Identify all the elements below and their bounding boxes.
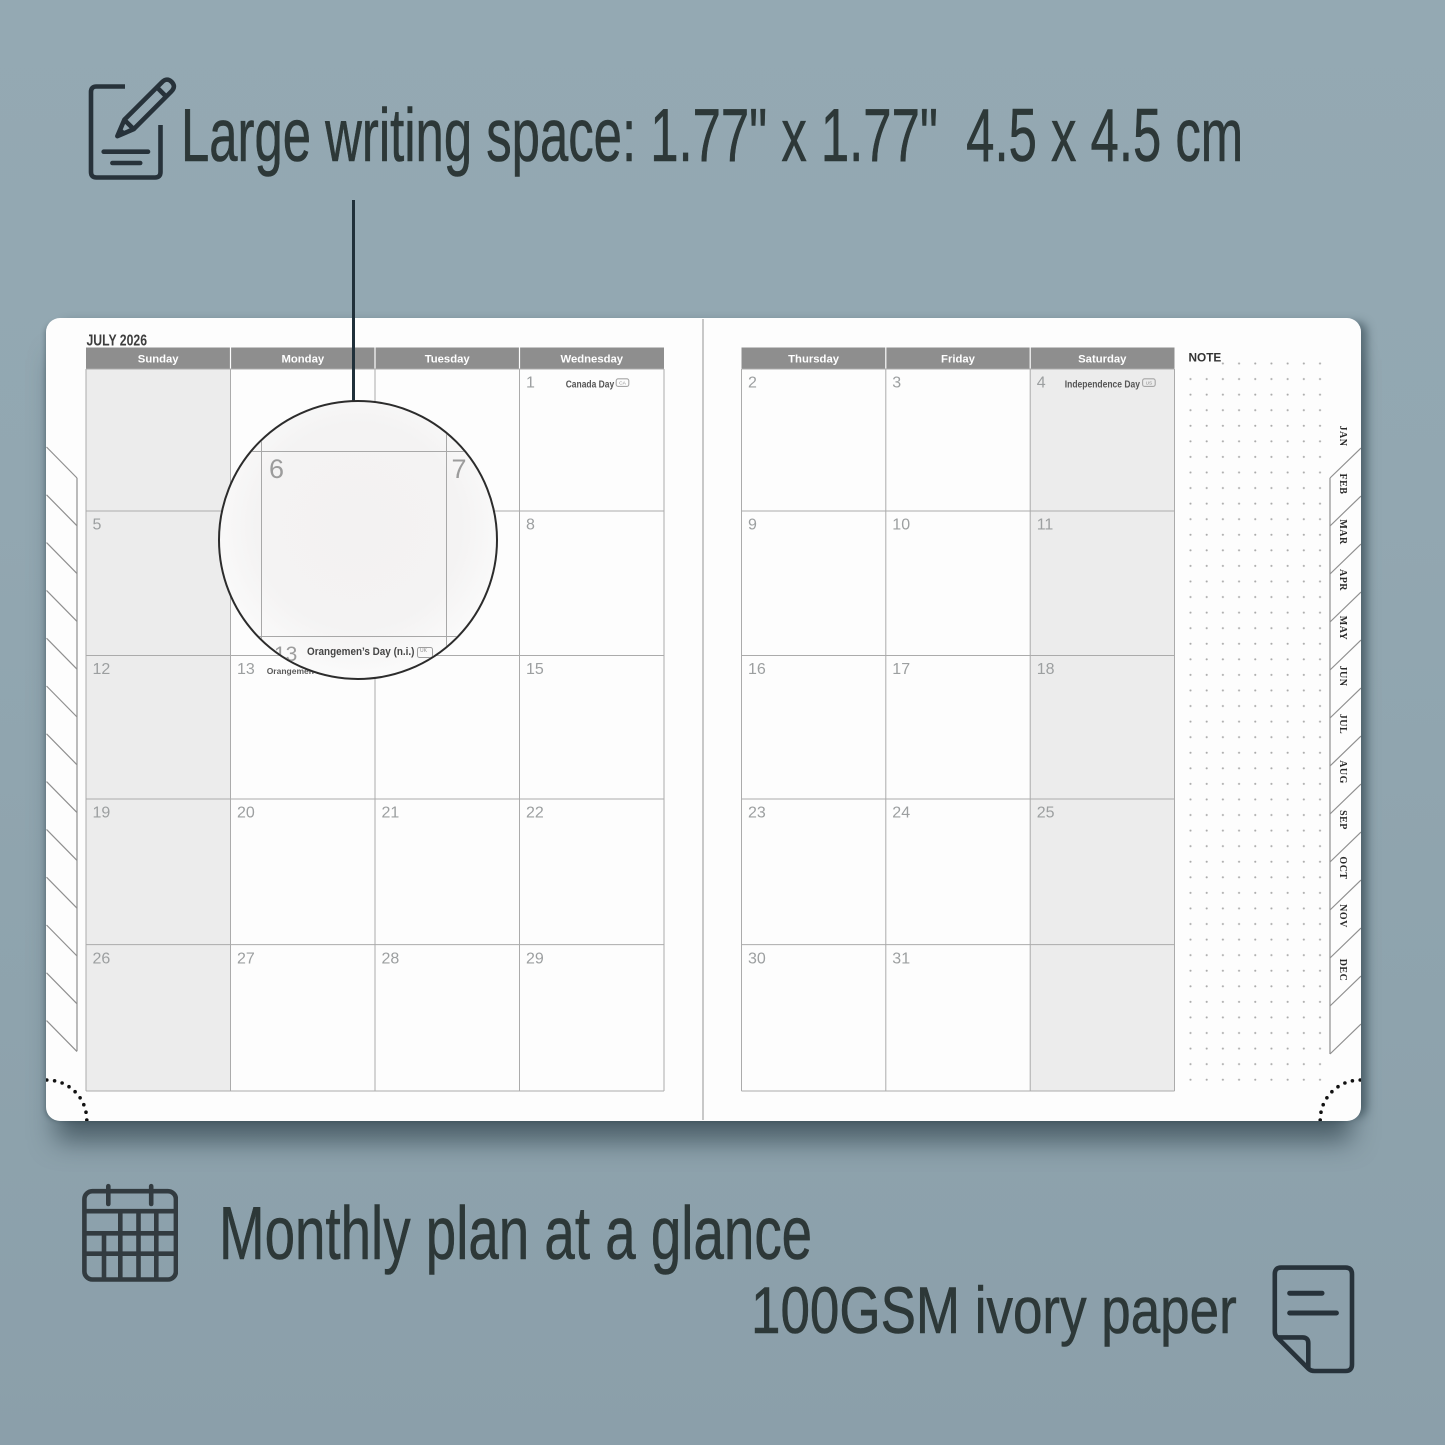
- svg-text:JUN: JUN: [1337, 666, 1348, 687]
- svg-text:Wednesday: Wednesday: [561, 354, 624, 366]
- svg-text:25: 25: [1037, 805, 1055, 822]
- svg-text:17: 17: [892, 661, 910, 678]
- svg-text:Canada Day: Canada Day: [566, 379, 615, 390]
- svg-text:19: 19: [93, 805, 111, 822]
- svg-text:8: 8: [526, 517, 535, 534]
- svg-text:2: 2: [748, 375, 757, 392]
- svg-text:23: 23: [748, 805, 766, 822]
- svg-text:OCT: OCT: [1337, 856, 1348, 879]
- svg-text:27: 27: [237, 950, 255, 967]
- svg-text:26: 26: [93, 950, 111, 967]
- svg-text:APR: APR: [1337, 569, 1348, 591]
- svg-text:JULY 2026: JULY 2026: [87, 333, 148, 350]
- svg-text:DEC: DEC: [1337, 959, 1348, 982]
- svg-text:11: 11: [1037, 517, 1054, 534]
- svg-text:Friday: Friday: [941, 354, 976, 366]
- svg-text:MAY: MAY: [1337, 616, 1348, 641]
- svg-text:1: 1: [526, 375, 535, 392]
- svg-text:13: 13: [237, 661, 255, 678]
- svg-text:Sunday: Sunday: [138, 354, 180, 366]
- svg-text:28: 28: [382, 950, 400, 967]
- svg-text:29: 29: [526, 950, 544, 967]
- svg-text:Thursday: Thursday: [788, 354, 840, 366]
- svg-text:NOV: NOV: [1337, 904, 1348, 928]
- svg-text:5: 5: [93, 517, 102, 534]
- svg-text:24: 24: [892, 805, 910, 822]
- svg-text:12: 12: [93, 661, 111, 678]
- svg-text:JUL: JUL: [1337, 714, 1348, 734]
- svg-text:Tuesday: Tuesday: [425, 354, 471, 366]
- svg-text:Independence Day: Independence Day: [1065, 379, 1141, 390]
- svg-text:CA: CA: [619, 381, 626, 387]
- svg-text:4: 4: [1037, 375, 1046, 392]
- svg-text:3: 3: [892, 375, 901, 392]
- svg-text:16: 16: [748, 661, 766, 678]
- svg-text:US: US: [1146, 381, 1153, 387]
- svg-text:Saturday: Saturday: [1078, 354, 1127, 366]
- svg-text:31: 31: [892, 950, 910, 967]
- svg-text:JAN: JAN: [1337, 426, 1348, 447]
- svg-text:10: 10: [892, 517, 910, 534]
- svg-text:15: 15: [526, 661, 544, 678]
- svg-text:MAR: MAR: [1337, 519, 1348, 545]
- svg-text:AUG: AUG: [1337, 760, 1348, 784]
- svg-text:18: 18: [1037, 661, 1055, 678]
- svg-text:Monday: Monday: [281, 354, 324, 366]
- svg-text:30: 30: [748, 950, 766, 967]
- svg-text:NOTE: NOTE: [1189, 350, 1222, 364]
- svg-text:20: 20: [237, 805, 255, 822]
- svg-text:9: 9: [748, 517, 757, 534]
- svg-text:SEP: SEP: [1337, 810, 1348, 830]
- svg-text:FEB: FEB: [1337, 474, 1348, 495]
- svg-text:21: 21: [382, 805, 400, 822]
- svg-text:22: 22: [526, 805, 544, 822]
